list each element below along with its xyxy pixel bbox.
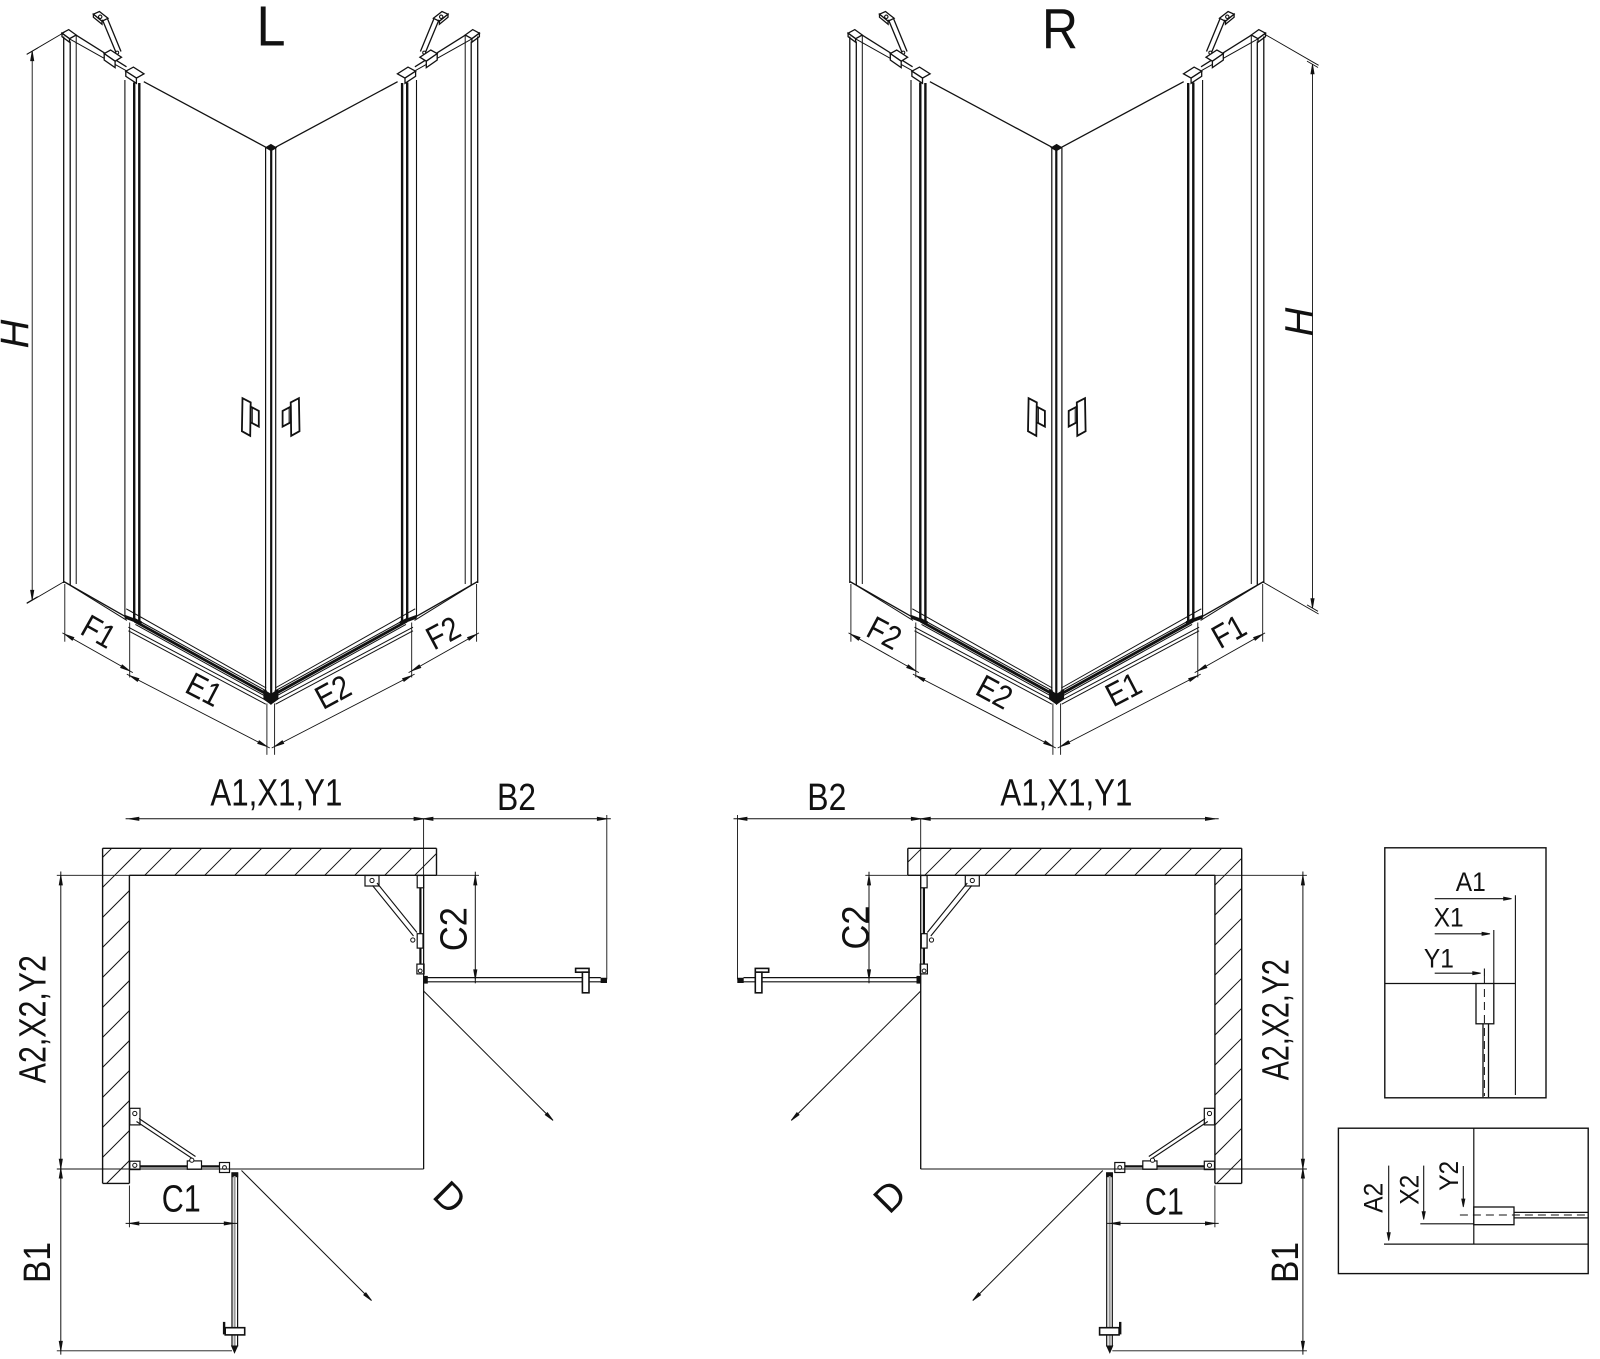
svg-text:A2,X2,Y2: A2,X2,Y2 <box>1255 959 1297 1080</box>
svg-text:R: R <box>1042 0 1078 61</box>
svg-text:B2: B2 <box>497 777 536 819</box>
svg-text:B2: B2 <box>807 777 846 819</box>
svg-text:B1: B1 <box>17 1242 59 1283</box>
svg-text:H: H <box>1277 307 1321 336</box>
svg-text:A1: A1 <box>1456 867 1486 897</box>
svg-text:A1,X1,Y1: A1,X1,Y1 <box>1000 773 1132 815</box>
svg-text:C1: C1 <box>162 1179 201 1221</box>
svg-text:Y1: Y1 <box>1424 944 1454 974</box>
svg-text:A2,X2,Y2: A2,X2,Y2 <box>13 955 55 1083</box>
svg-text:Y2: Y2 <box>1434 1161 1464 1191</box>
svg-text:B1: B1 <box>1265 1242 1307 1283</box>
svg-text:L: L <box>257 0 286 58</box>
svg-text:C2: C2 <box>836 906 878 950</box>
svg-text:H: H <box>0 319 37 348</box>
svg-text:A1,X1,Y1: A1,X1,Y1 <box>210 773 342 815</box>
svg-text:X1: X1 <box>1434 902 1464 932</box>
svg-text:C1: C1 <box>1145 1182 1184 1224</box>
svg-text:C2: C2 <box>433 907 475 951</box>
svg-text:A2: A2 <box>1358 1183 1388 1213</box>
svg-text:X2: X2 <box>1395 1175 1425 1205</box>
